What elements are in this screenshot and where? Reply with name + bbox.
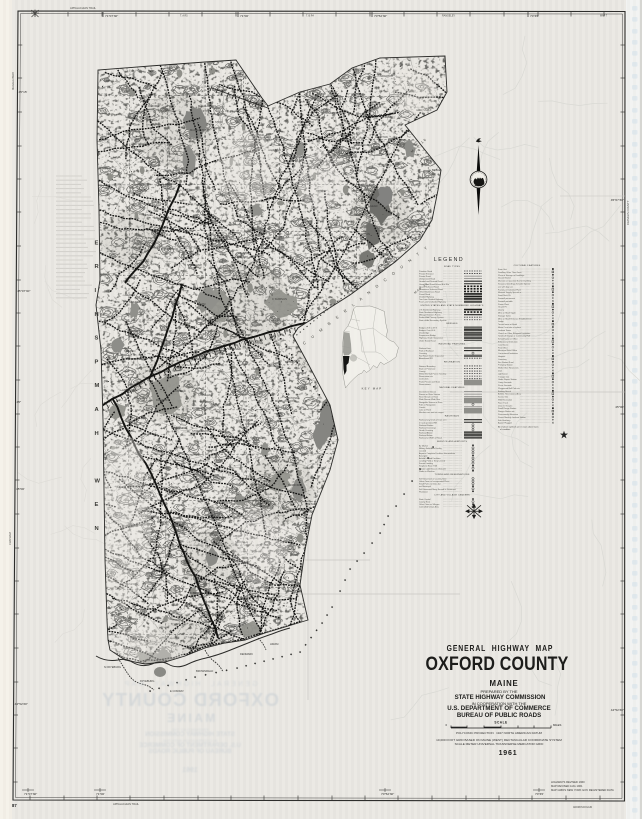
svg-text:BROWNFIELD: BROWNFIELD bbox=[196, 669, 213, 673]
svg-text:N FRYEBURG: N FRYEBURG bbox=[104, 665, 121, 669]
svg-text:HIRAM: HIRAM bbox=[270, 642, 278, 646]
svg-text:DENMARK: DENMARK bbox=[240, 652, 253, 656]
